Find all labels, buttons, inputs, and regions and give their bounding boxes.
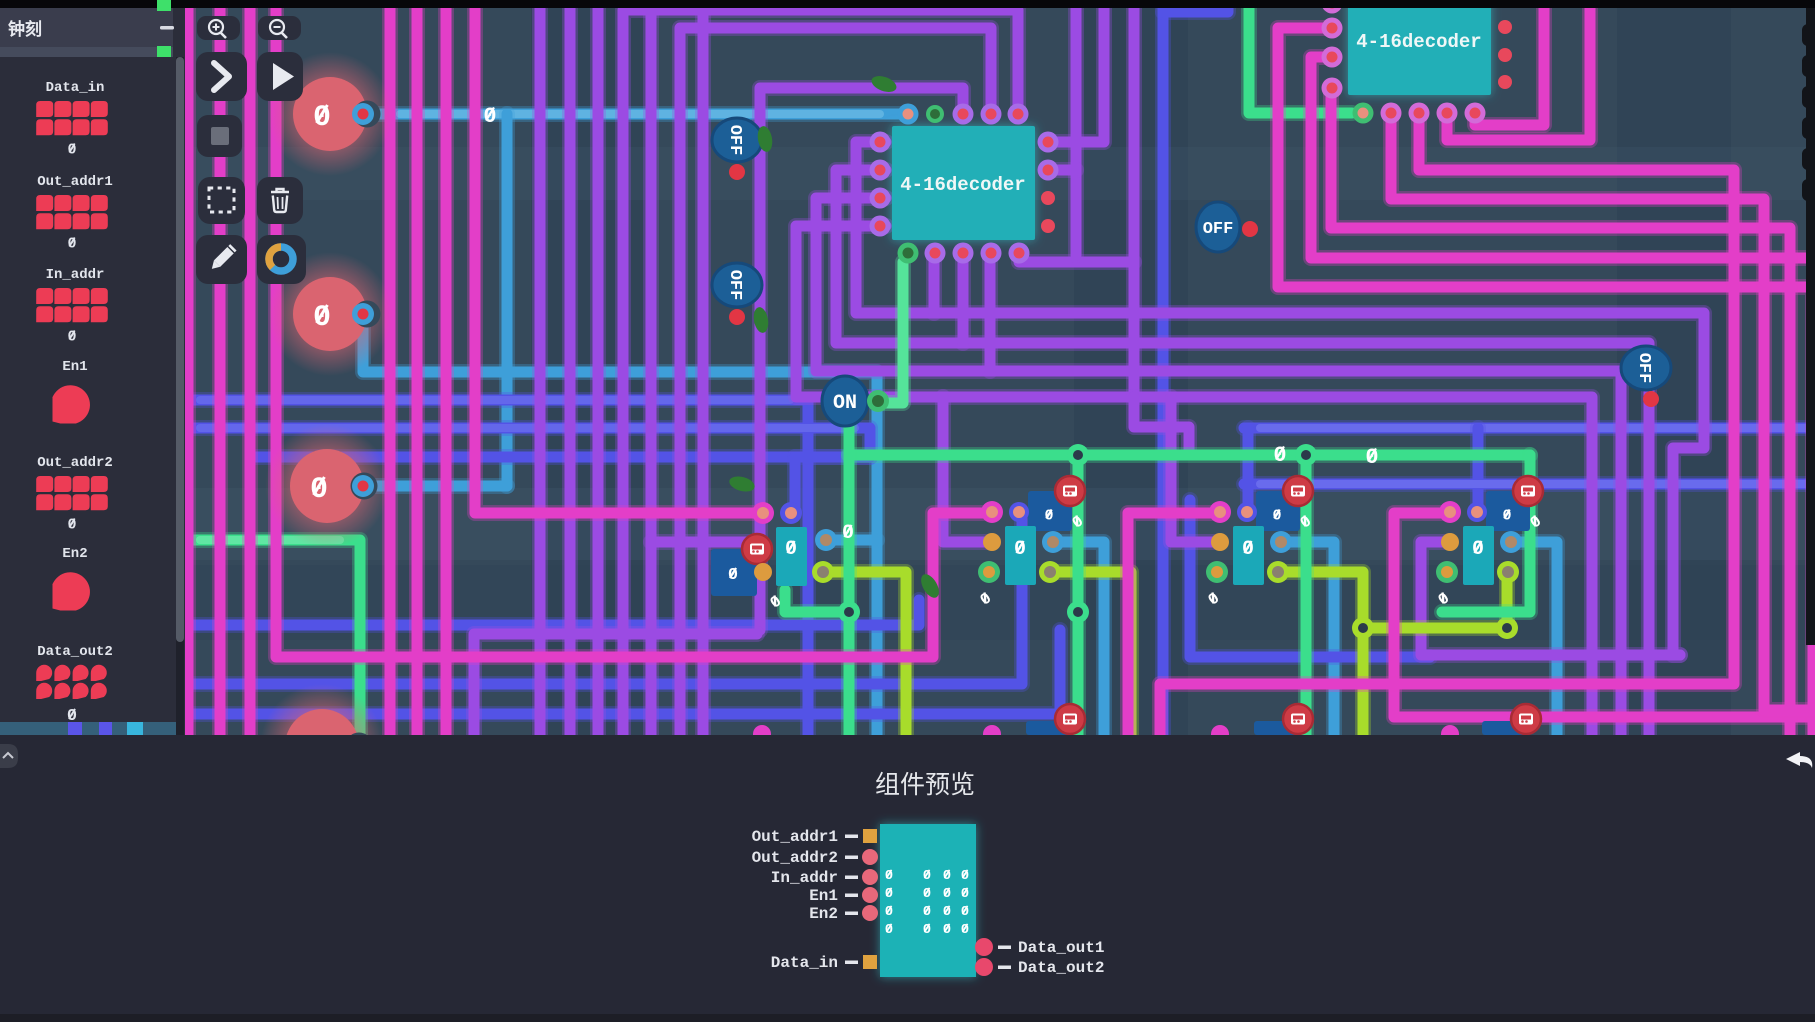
svg-text:Data_out2: Data_out2 [37,644,113,660]
svg-text:En2: En2 [809,905,838,923]
svg-text:0: 0 [1273,443,1286,468]
svg-text:OFF: OFF [1203,220,1234,239]
svg-text:Data_out2: Data_out2 [1018,959,1104,977]
svg-text:ON: ON [833,392,857,415]
svg-text:In_addr: In_addr [771,869,838,887]
svg-text:Out_addr1: Out_addr1 [37,174,113,190]
svg-text:Out_addr2: Out_addr2 [37,455,113,471]
svg-text:In_addr: In_addr [46,267,105,283]
svg-text:OFF: OFF [725,270,744,301]
svg-text:0: 0 [483,104,496,129]
svg-text:Data_in: Data_in [46,80,105,96]
svg-text:En1: En1 [62,359,87,375]
svg-text:En2: En2 [62,546,87,562]
svg-text:组件预览: 组件预览 [875,771,975,799]
svg-text:Out_addr2: Out_addr2 [752,849,838,867]
svg-text:Data_out1: Data_out1 [1018,939,1104,957]
svg-text:OFF: OFF [725,125,744,156]
svg-text:Out_addr1: Out_addr1 [752,828,838,846]
svg-text:OFF: OFF [1634,353,1653,384]
svg-text:Data_in: Data_in [771,954,838,972]
svg-text:钟刻: 钟刻 [8,19,42,39]
svg-text:0: 0 [67,707,77,726]
svg-text:4-16decoder: 4-16decoder [900,174,1025,196]
svg-text:En1: En1 [809,887,838,905]
svg-text:0: 0 [1365,445,1378,470]
svg-text:4-16decoder: 4-16decoder [1356,31,1481,53]
